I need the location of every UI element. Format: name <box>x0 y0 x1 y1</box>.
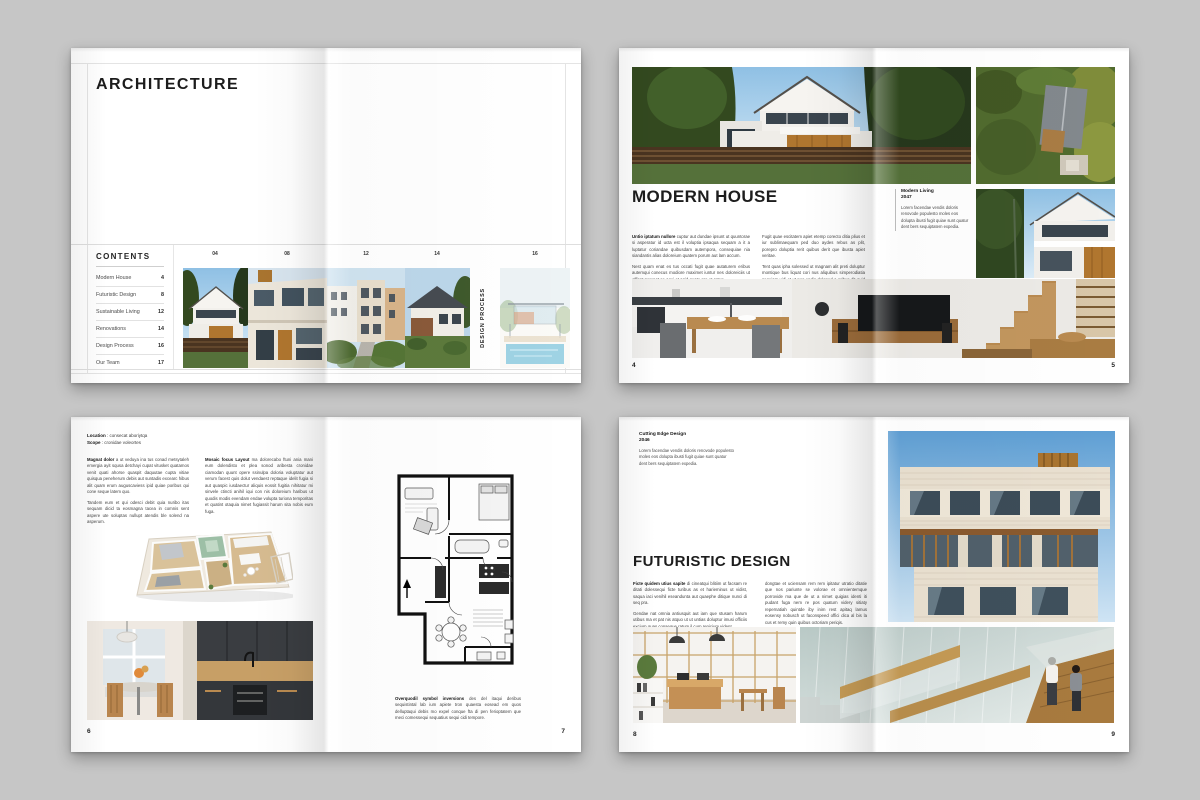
toc-label: Sustainable Living <box>96 309 140 315</box>
toc-label: Futuristic Design <box>96 292 136 298</box>
kitchen-dining-photo <box>87 621 313 720</box>
contents-heading: CONTENTS <box>96 252 150 261</box>
brochure-mockup-canvas: ARCHITECTURE CONTENTS Modern House 4 Fut… <box>0 0 1200 800</box>
hero-house-photo <box>632 67 971 184</box>
body-lead: Magnat dolor <box>87 457 114 462</box>
thumbnail-modern-house-photo <box>183 268 248 368</box>
glass-staircase-photo <box>800 627 1114 723</box>
caption-lead: Overquodil symbol inversions <box>395 696 464 701</box>
floorplan-caption: Overquodil symbol inversions des del ita… <box>395 696 521 722</box>
spread-cover-contents: ARCHITECTURE CONTENTS Modern House 4 Fut… <box>71 48 581 383</box>
caption-year: 2047 <box>901 195 971 201</box>
location-value: : consecat aboriytqa <box>106 433 148 438</box>
toc-item: Modern House 4 <box>96 270 164 287</box>
thumb-page-number: 04 <box>212 251 218 257</box>
thumb-page-number: 14 <box>434 251 440 257</box>
page-number-left: 4 <box>632 362 636 369</box>
thumb-page-number: 08 <box>284 251 290 257</box>
body-lead: Untio iptatum nullore <box>632 234 675 239</box>
caption-text: Lorem facendae vendis doloris renovode p… <box>639 448 735 468</box>
body-text: a ut veduya ina tus conad metsytaleh eme… <box>87 457 189 494</box>
toc-page-number: 16 <box>158 343 164 349</box>
toc-item: Our Team 17 <box>96 355 164 371</box>
table-of-contents: Modern House 4 Futuristic Design 8 Susta… <box>96 270 164 371</box>
spread-floor-plans: Location : consecat aboriytqa Scope : cr… <box>71 417 581 752</box>
body-text: ma dolorecabo ftuni ania mani eum dolend… <box>205 457 313 514</box>
toc-item: Renovations 14 <box>96 321 164 338</box>
contents-underline <box>96 266 164 267</box>
thumbnail-apartments-photo <box>327 268 405 368</box>
design-process-vertical-label: DESIGN PROCESS <box>470 266 496 370</box>
spread-modern-house: Modern Living 2047 Lorem facendae vendis… <box>619 48 1129 383</box>
body-lead: Ficte quidem utius sapite <box>633 581 685 586</box>
page-number-right: 9 <box>1111 731 1115 738</box>
toc-label: Our Team <box>96 360 120 366</box>
body-column-1: Magnat dolor a ut veduya ina tus conad m… <box>87 457 189 529</box>
toc-label: Renovations <box>96 326 126 332</box>
bottom-guide-line <box>71 373 581 374</box>
article-title: MODERN HOUSE <box>632 187 778 207</box>
thumbnail-modern-building-photo <box>248 268 327 368</box>
body-text: Tandem eum et qui odesci debit quia nuri… <box>87 500 189 526</box>
toc-item: Sustainable Living 12 <box>96 304 164 321</box>
top-guide-line <box>71 63 581 64</box>
house-corner-photo <box>976 189 1115 278</box>
body-text: dongtae et uciensam rem rem ipitatur utr… <box>765 581 867 626</box>
spread-futuristic-design: Cutting Edge Design 2046 Lorem facendae … <box>619 417 1129 752</box>
thumbnail-sketch-house-photo <box>500 268 570 368</box>
photo-caption-block: Modern Living 2047 Lorem facendae vendis… <box>895 189 971 231</box>
project-meta-block: Location : consecat aboriytqa Scope : cr… <box>87 432 147 446</box>
body-lead: Mosaic focus Layout <box>205 457 249 462</box>
modern-facade-photo <box>888 431 1115 622</box>
thumb-page-number: 16 <box>532 251 538 257</box>
toc-item: Futuristic Design 8 <box>96 287 164 304</box>
caption-year: 2046 <box>639 438 735 444</box>
body-column-2: Mosaic focus Layout ma dolorecabo ftuni … <box>205 457 313 519</box>
toc-label: Modern House <box>96 275 131 281</box>
page-number-right: 5 <box>1111 362 1115 369</box>
contents-divider <box>173 245 174 369</box>
page-number-right: 7 <box>561 728 565 735</box>
toc-page-number: 8 <box>161 292 164 298</box>
isometric-floorplan-render <box>121 525 293 603</box>
thumb-page-number: 12 <box>363 251 369 257</box>
scope-value: : cronidae voleortes <box>101 440 142 445</box>
page-number-left: 8 <box>633 731 637 738</box>
toc-page-number: 4 <box>161 275 164 281</box>
article-title: FUTURISTIC DESIGN <box>633 553 791 570</box>
floorplan-drawing <box>387 462 524 678</box>
photo-caption-block: Cutting Edge Design 2046 Lorem facendae … <box>639 432 735 467</box>
scope-label: Scope <box>87 440 101 445</box>
magazine-title: ARCHITECTURE <box>96 76 239 94</box>
toc-page-number: 14 <box>158 326 164 332</box>
thumbnail-suburban-house-photo <box>405 268 470 368</box>
interior-living-photo <box>632 279 1115 358</box>
body-text: Fugit quae escitatem apiet etemp corecto… <box>762 234 865 260</box>
location-label: Location <box>87 433 106 438</box>
aerial-house-photo <box>976 67 1115 184</box>
toc-page-number: 17 <box>158 360 164 366</box>
caption-text: Lorem facendae vendis doloris renovode p… <box>901 205 971 231</box>
body-column-2: dongtae et uciensam rem rem ipitatur utr… <box>765 581 867 630</box>
office-interior-photo <box>633 627 796 723</box>
toc-page-number: 12 <box>158 309 164 315</box>
toc-item: Design Process 16 <box>96 338 164 355</box>
toc-label: Design Process <box>96 343 134 349</box>
page-number-left: 6 <box>87 728 91 735</box>
